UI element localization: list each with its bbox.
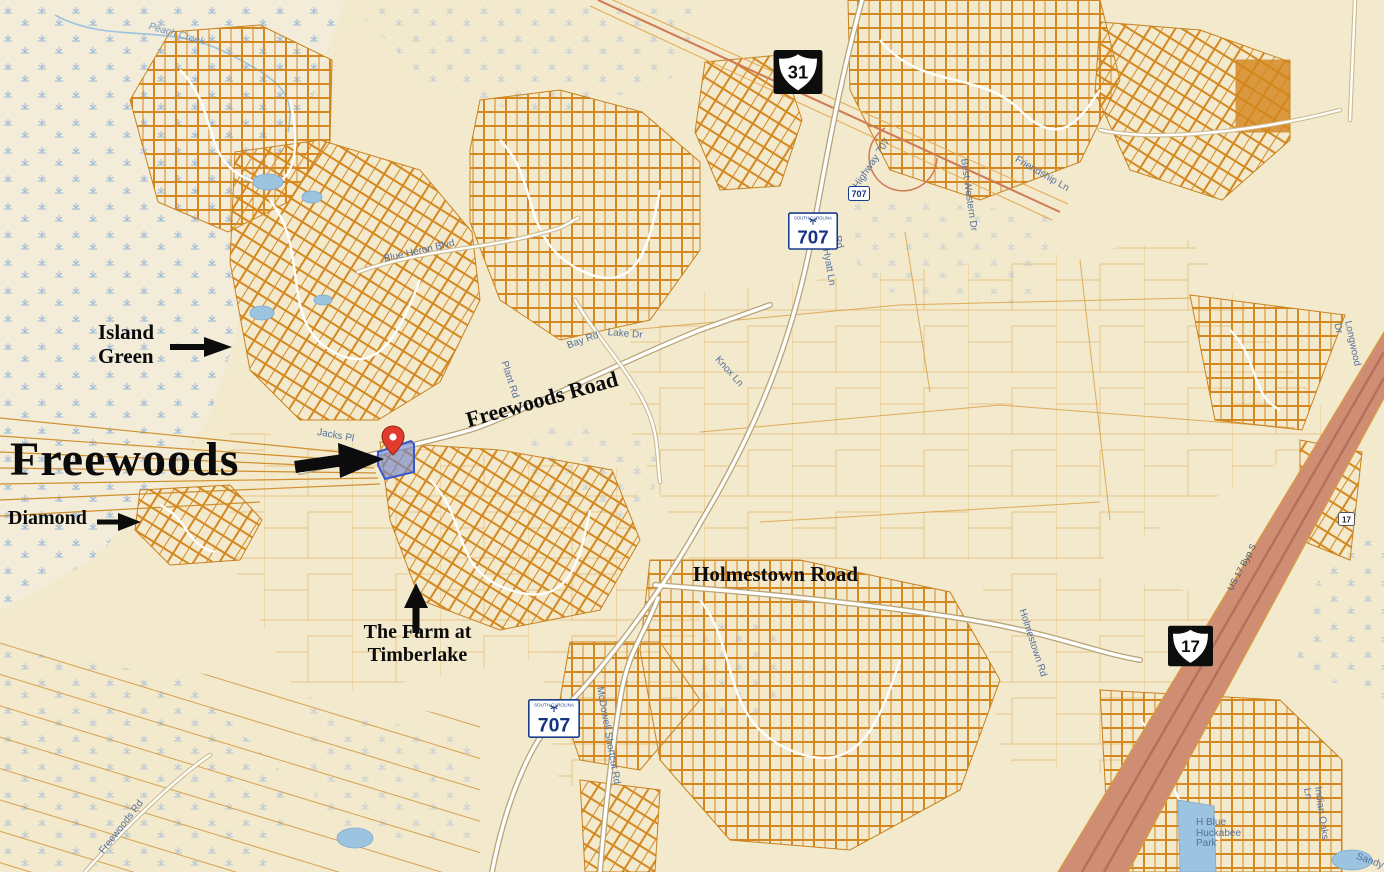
svg-text:31: 31 (788, 62, 808, 83)
us17-small-marker-icon: 17 (1338, 512, 1355, 526)
sc707-small-marker-icon: 707 (848, 186, 870, 201)
svg-text:SOUTH CAROLINA: SOUTH CAROLINA (794, 215, 832, 220)
us31-shield-icon: 31 (773, 50, 823, 94)
us17-shield-icon: 17 (1168, 625, 1213, 667)
svg-text:707: 707 (851, 189, 866, 199)
svg-text:707: 707 (538, 715, 571, 737)
map-canvas[interactable]: Peach Creek Blue Heron Blvd Bay Rd Plant… (0, 0, 1384, 872)
svg-text:707: 707 (797, 227, 828, 248)
sc707-shield-icon: SOUTH CAROLINA 707 (528, 699, 580, 738)
annotation-holmestown-road: Holmestown Road (693, 562, 858, 586)
svg-text:17: 17 (1342, 516, 1351, 525)
sc707-shield-icon: SOUTH CAROLINA 707 (788, 212, 838, 250)
annotation-diamond: Diamond (8, 507, 87, 530)
annotation-freewoods: Freewoods (10, 432, 239, 487)
svg-text:SOUTH CAROLINA: SOUTH CAROLINA (534, 702, 574, 707)
annotation-farm-at-timberlake: The Farm at Timberlake (340, 621, 495, 667)
svg-text:17: 17 (1181, 637, 1200, 656)
park-label: H Blue Huckabee Park (1196, 818, 1241, 850)
annotation-island-green: Island Green (98, 320, 154, 368)
